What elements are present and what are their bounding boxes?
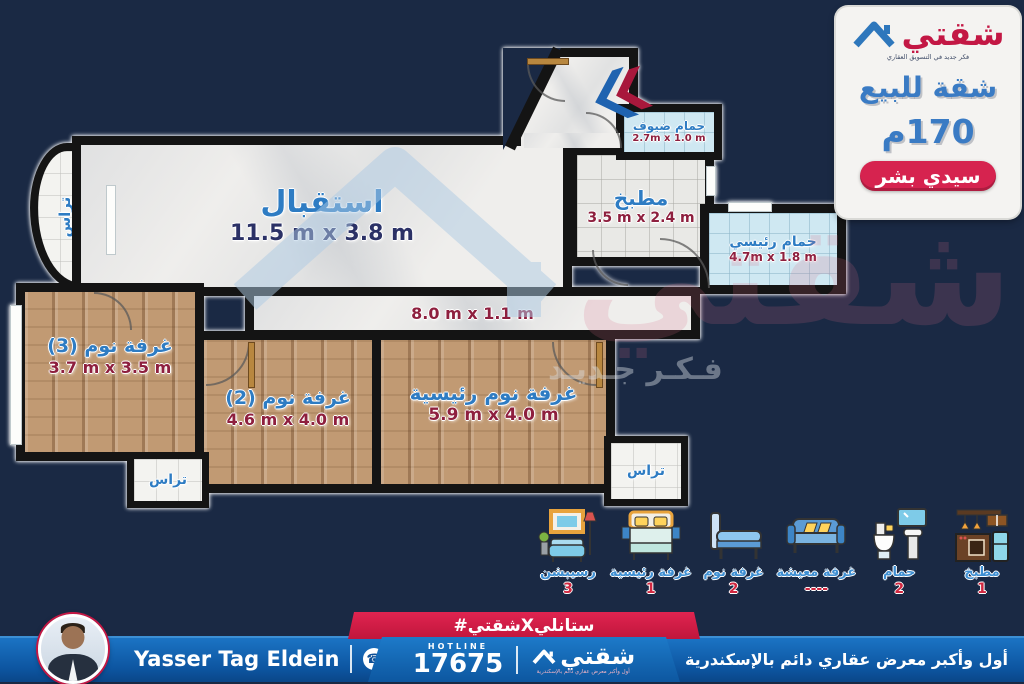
bathroom-icon: [868, 507, 930, 565]
house-logo-icon: [531, 646, 557, 666]
room-label: غرفة نوم رئيسية: [410, 382, 578, 405]
reception-furniture-icon: [537, 507, 599, 565]
room-dims: 3.5 m x 2.4 m: [587, 210, 694, 226]
door-arc-kitchen: [592, 250, 628, 286]
listing-info-panel: شقتي فكر جديد في التسويق العقاري شقة للب…: [836, 7, 1020, 218]
legend-count: 1: [646, 581, 656, 597]
room-dims: 3.7 m x 3.5 m: [49, 358, 172, 377]
window-terrace-left: [106, 185, 116, 255]
legend-count: 1: [977, 581, 987, 597]
divider: [350, 645, 352, 673]
legend-item-reception: رسيبشن 3: [528, 507, 608, 609]
kitchen-icon: [951, 507, 1013, 565]
master-bed-icon: [620, 507, 682, 565]
legend-label: حمام: [883, 565, 916, 580]
legend-label: رسيبشن: [540, 565, 596, 580]
footer-brand: شقتي أول وأكبر معرض عقاري دائم بالإسكندر…: [531, 644, 635, 676]
legend-count: 2: [894, 581, 904, 597]
room-label: غرفة نوم (2): [225, 388, 351, 410]
legend-label: مطبخ: [964, 565, 999, 580]
room-dims: 4.6 m x 4.0 m: [227, 410, 350, 429]
room-label: تراس: [627, 463, 665, 479]
room-label: تراس: [149, 472, 187, 488]
listing-location-badge: سيدي بشر: [860, 161, 997, 191]
room-label: مطبخ: [614, 187, 668, 210]
footer-brand-name: شقتي: [560, 644, 635, 668]
room-label: غرفة نوم (3): [47, 336, 173, 358]
room-terrace-bottom-left: تراس: [127, 452, 209, 508]
legend-item-living-room: غرفة معيشة ----: [776, 507, 856, 609]
listing-area: 170م: [881, 112, 974, 151]
house-logo-icon: [851, 15, 897, 51]
door-leaf-entry: [527, 58, 569, 65]
brand-logo-tagline: فكر جديد في التسويق العقاري: [887, 53, 969, 61]
room-dims: 11.5 m x 3.8 m: [230, 221, 414, 246]
legend-label: غرفة رئيسية: [610, 565, 692, 580]
room-dims: 8.0 m x 1.1 m: [411, 304, 534, 323]
legend-count: 2: [729, 581, 739, 597]
door-leaf-bedroom-2: [248, 342, 255, 388]
window-kitchen: [706, 166, 716, 196]
legend-count: 3: [563, 581, 573, 597]
door-leaf-master-bedroom: [596, 342, 603, 388]
listing-title: شقة للبيع: [859, 71, 997, 104]
sofa-icon: [785, 507, 847, 565]
hashtag-text: #شقتيXستانلي: [453, 616, 594, 636]
hotline: HOTLINE 17675: [413, 643, 503, 677]
single-bed-icon: [703, 507, 765, 565]
footer-bar: Yasser Tag Eldein ☎ 011 224 115 99 #شقتي…: [0, 612, 1024, 682]
room-dims: 5.9 m x 4.0 m: [428, 405, 558, 425]
room-dims: 2.7m x 1.0 m: [632, 133, 705, 144]
hashtag-ribbon: #شقتيXستانلي: [348, 612, 700, 639]
room-reception: استقبال 11.5 m x 3.8 m: [72, 136, 572, 296]
legend-item-kitchen: مطبخ 1: [942, 507, 1022, 609]
hotline-block: HOTLINE 17675 شقتي أول وأكبر معرض عقاري …: [368, 637, 680, 682]
legend-count: ----: [805, 581, 828, 597]
legend-item-bathroom: حمام 2: [859, 507, 939, 609]
agent-avatar: [38, 614, 108, 684]
legend-item-bedroom: غرفة نوم 2: [694, 507, 774, 609]
brand-logo: شقتي: [851, 15, 1004, 51]
agent-name: Yasser Tag Eldein: [134, 647, 339, 671]
room-terrace-bottom-right: تراس: [604, 436, 688, 506]
footer-brand-tagline: أول وأكبر معرض عقاري دائم بالإسكندرية: [537, 670, 630, 676]
window-bedroom-3: [10, 305, 22, 445]
brand-logo-text: شقتي: [901, 17, 1004, 50]
room-kitchen: مطبخ 3.5 m x 2.4 m: [568, 146, 714, 266]
room-label: حمام ضيوف: [633, 120, 705, 134]
legend-item-master-room: غرفة رئيسية 1: [611, 507, 691, 609]
legend-label: غرفة معيشة: [777, 565, 857, 580]
window-master-bathroom: [728, 202, 772, 212]
room-label: استقبال: [260, 186, 383, 221]
room-label: حمام رئيسي: [729, 234, 816, 250]
legend-label: غرفة نوم: [703, 565, 763, 580]
room-legend: رسيبشن 3 غرفة رئيسية 1 غرفة نوم 2: [528, 507, 1022, 609]
hotline-number: 17675: [413, 651, 503, 677]
footer-slogan: أول وأكبر معرض عقاري دائم بالإسكندرية: [685, 650, 1008, 669]
room-dims: 4.7m x 1.8 m: [729, 250, 817, 264]
divider: [516, 646, 518, 674]
room-master-bathroom: حمام رئيسي 4.7m x 1.8 m: [700, 204, 846, 294]
